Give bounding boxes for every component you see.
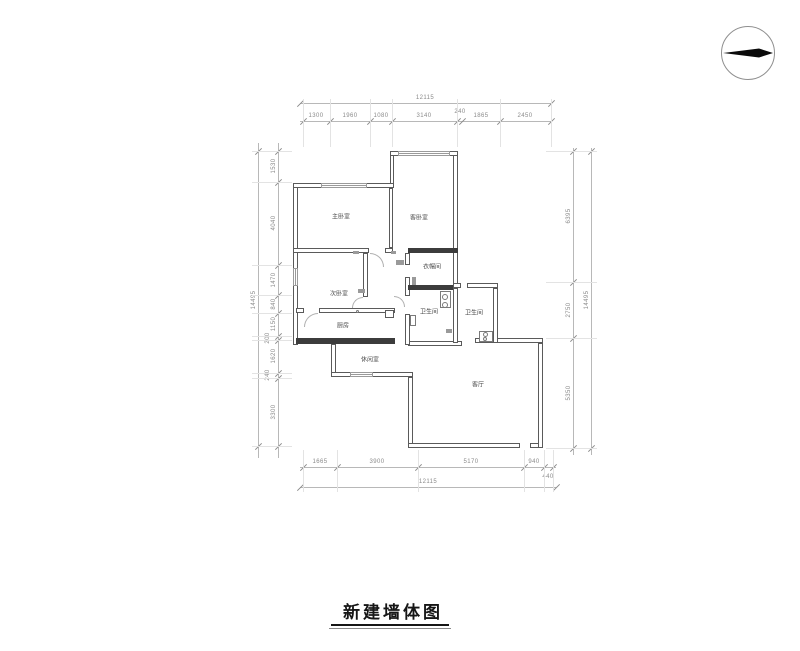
dimension-text: 14495 [251,291,257,310]
title-underline-thin [329,628,451,629]
wall [408,377,413,448]
extension-line [524,450,525,492]
fixture [410,315,416,326]
annotation-mark [391,251,396,254]
extension-line [330,99,331,147]
dimension-text: 14495 [584,291,590,310]
window [321,183,367,188]
room-label-cloakroom: 衣帽间 [423,265,441,272]
room-label-bathroom-1: 卫生间 [420,310,438,317]
extension-line [392,99,393,147]
annotation-mark [412,277,416,285]
dimension-text: 200 [265,332,271,343]
fixture-detail [442,294,448,300]
extension-line [337,450,338,492]
drawing-sheet: 主卧室 客卧室 次卧室 衣帽间 卫生间 卫生间 厨房 休闲室 客厅 12115 … [0,0,800,651]
extension-line [500,99,501,147]
dimension-text: 3900 [370,459,385,465]
dimension-text: 840 [271,298,277,309]
wall [405,253,410,265]
extension-line [252,446,292,447]
new-wall [408,248,458,253]
annotation-mark [356,310,359,313]
title-underline-thick [331,624,449,626]
dimension-text: 6395 [566,209,572,224]
door-arc [370,253,384,267]
north-compass-icon [721,26,775,80]
fixture-detail [442,302,448,308]
extension-line [546,448,597,449]
dimension-line [300,103,551,104]
extension-line [546,151,597,152]
dimension-tick [553,484,560,491]
drawing-title: 新建墙体图 [313,598,473,623]
extension-line [544,450,545,492]
extension-line [418,450,419,492]
dimension-text: 1960 [343,113,358,119]
extension-line [546,282,597,283]
extension-line [252,313,292,314]
wall [453,155,458,287]
annotation-mark [358,289,365,293]
dimension-text: 940 [528,459,539,465]
dimension-text: 2750 [566,303,572,318]
window [398,151,450,156]
room-label-second-bedroom: 次卧室 [330,292,348,299]
dimension-text: 1620 [271,349,277,364]
wall-column [385,310,394,318]
extension-line [252,378,292,379]
wall [538,343,543,448]
dimension-text: 1300 [309,113,324,119]
room-label-kitchen: 厨房 [337,324,349,331]
dimension-text: 2450 [518,113,533,119]
compass-needle-icon [722,27,774,79]
door-arc [394,296,405,307]
dimension-text: 1150 [271,317,277,332]
extension-line [370,99,371,147]
annotation-mark [353,251,359,254]
dimension-text: 1665 [313,459,328,465]
wall [296,308,304,313]
extension-line [252,265,292,266]
extension-line [553,450,554,492]
extension-line [303,99,304,147]
wall [331,344,336,373]
room-label-guest-bedroom: 客卧室 [410,216,428,223]
wall [408,443,520,448]
dimension-text: 5350 [566,386,572,401]
fixture-detail [483,337,487,341]
dimension-line [573,148,574,455]
wall [293,187,298,345]
dimension-text: 5170 [464,459,479,465]
new-wall [408,285,454,290]
new-wall [296,338,395,344]
room-label-lounge: 休闲室 [361,358,379,365]
dimension-text: 12115 [416,95,434,101]
extension-line [457,99,458,147]
extension-line [252,340,292,341]
annotation-mark [396,260,404,265]
dimension-text: 3140 [417,113,432,119]
extension-line [303,450,304,492]
extension-line [252,373,292,374]
extension-line [252,151,292,152]
dimension-text: 12115 [419,479,437,485]
dimension-text: 1865 [474,113,489,119]
extension-line [546,338,597,339]
dimension-text: 1530 [271,159,277,174]
extension-line [252,182,292,183]
annotation-mark [446,329,452,333]
window [293,268,298,286]
door-arc [352,297,363,308]
window [350,372,373,377]
dimension-text: 4040 [271,216,277,231]
room-label-living-room: 客厅 [472,383,484,390]
dimension-line [591,148,592,455]
room-label-master-bedroom: 主卧室 [332,215,350,222]
dimension-line [300,487,556,488]
extension-line [252,295,292,296]
wall [453,288,458,343]
wall [493,288,498,343]
extension-line [252,336,292,337]
dimension-line [300,121,551,122]
extension-line [551,99,552,147]
dimension-text: 1470 [271,273,277,288]
wall [389,188,393,248]
room-label-bathroom-2: 卫生间 [465,311,483,318]
door-arc [304,313,318,327]
dimension-text: 3300 [271,405,277,420]
dimension-line [258,143,259,458]
dimension-text: 1080 [374,113,389,119]
dimension-line [278,143,279,458]
